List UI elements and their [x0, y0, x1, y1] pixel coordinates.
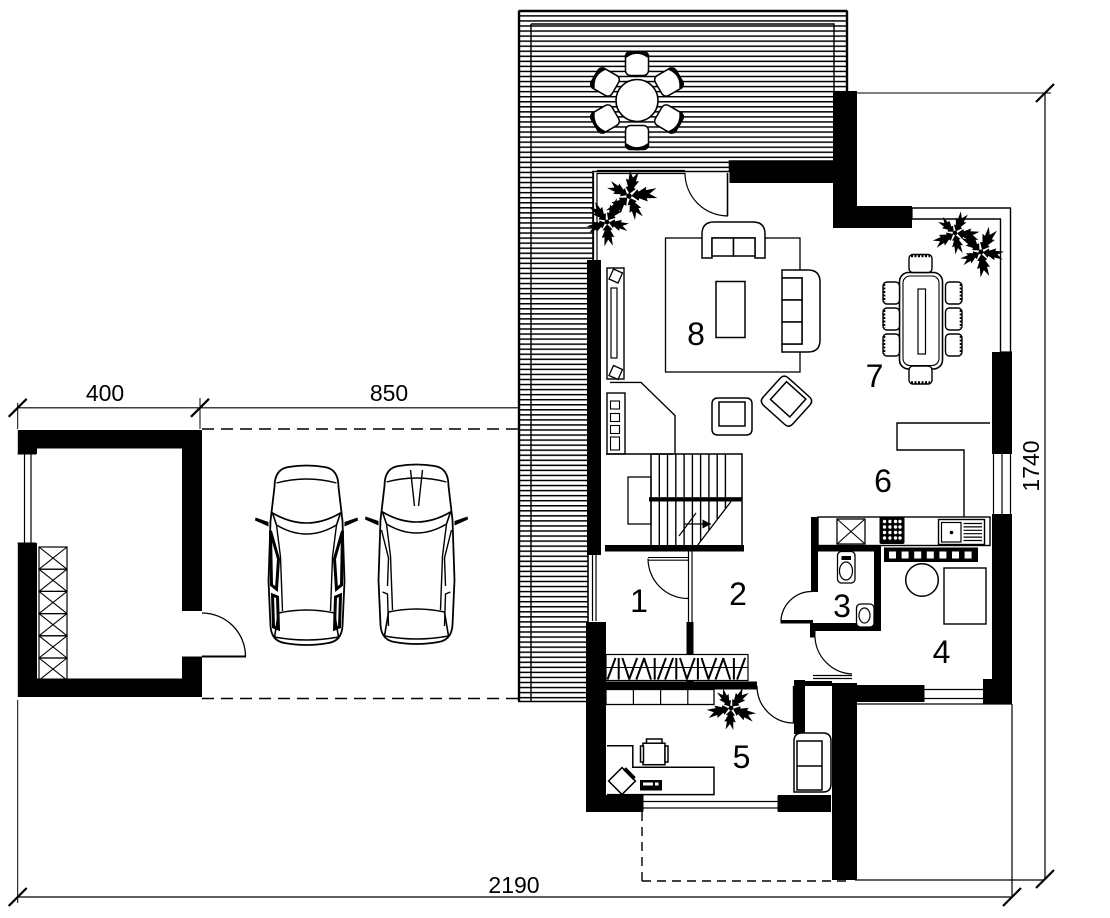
svg-text:1740: 1740 — [1018, 440, 1044, 491]
svg-text:5: 5 — [733, 739, 751, 775]
svg-text:3: 3 — [833, 588, 851, 624]
svg-text:7: 7 — [866, 358, 884, 394]
svg-text:2190: 2190 — [488, 872, 539, 898]
svg-text:400: 400 — [86, 380, 124, 406]
svg-text:2: 2 — [729, 576, 747, 612]
svg-text:8: 8 — [687, 316, 705, 352]
svg-text:850: 850 — [370, 380, 408, 406]
svg-text:4: 4 — [933, 634, 951, 670]
svg-text:6: 6 — [874, 463, 892, 499]
svg-text:1: 1 — [630, 583, 648, 619]
